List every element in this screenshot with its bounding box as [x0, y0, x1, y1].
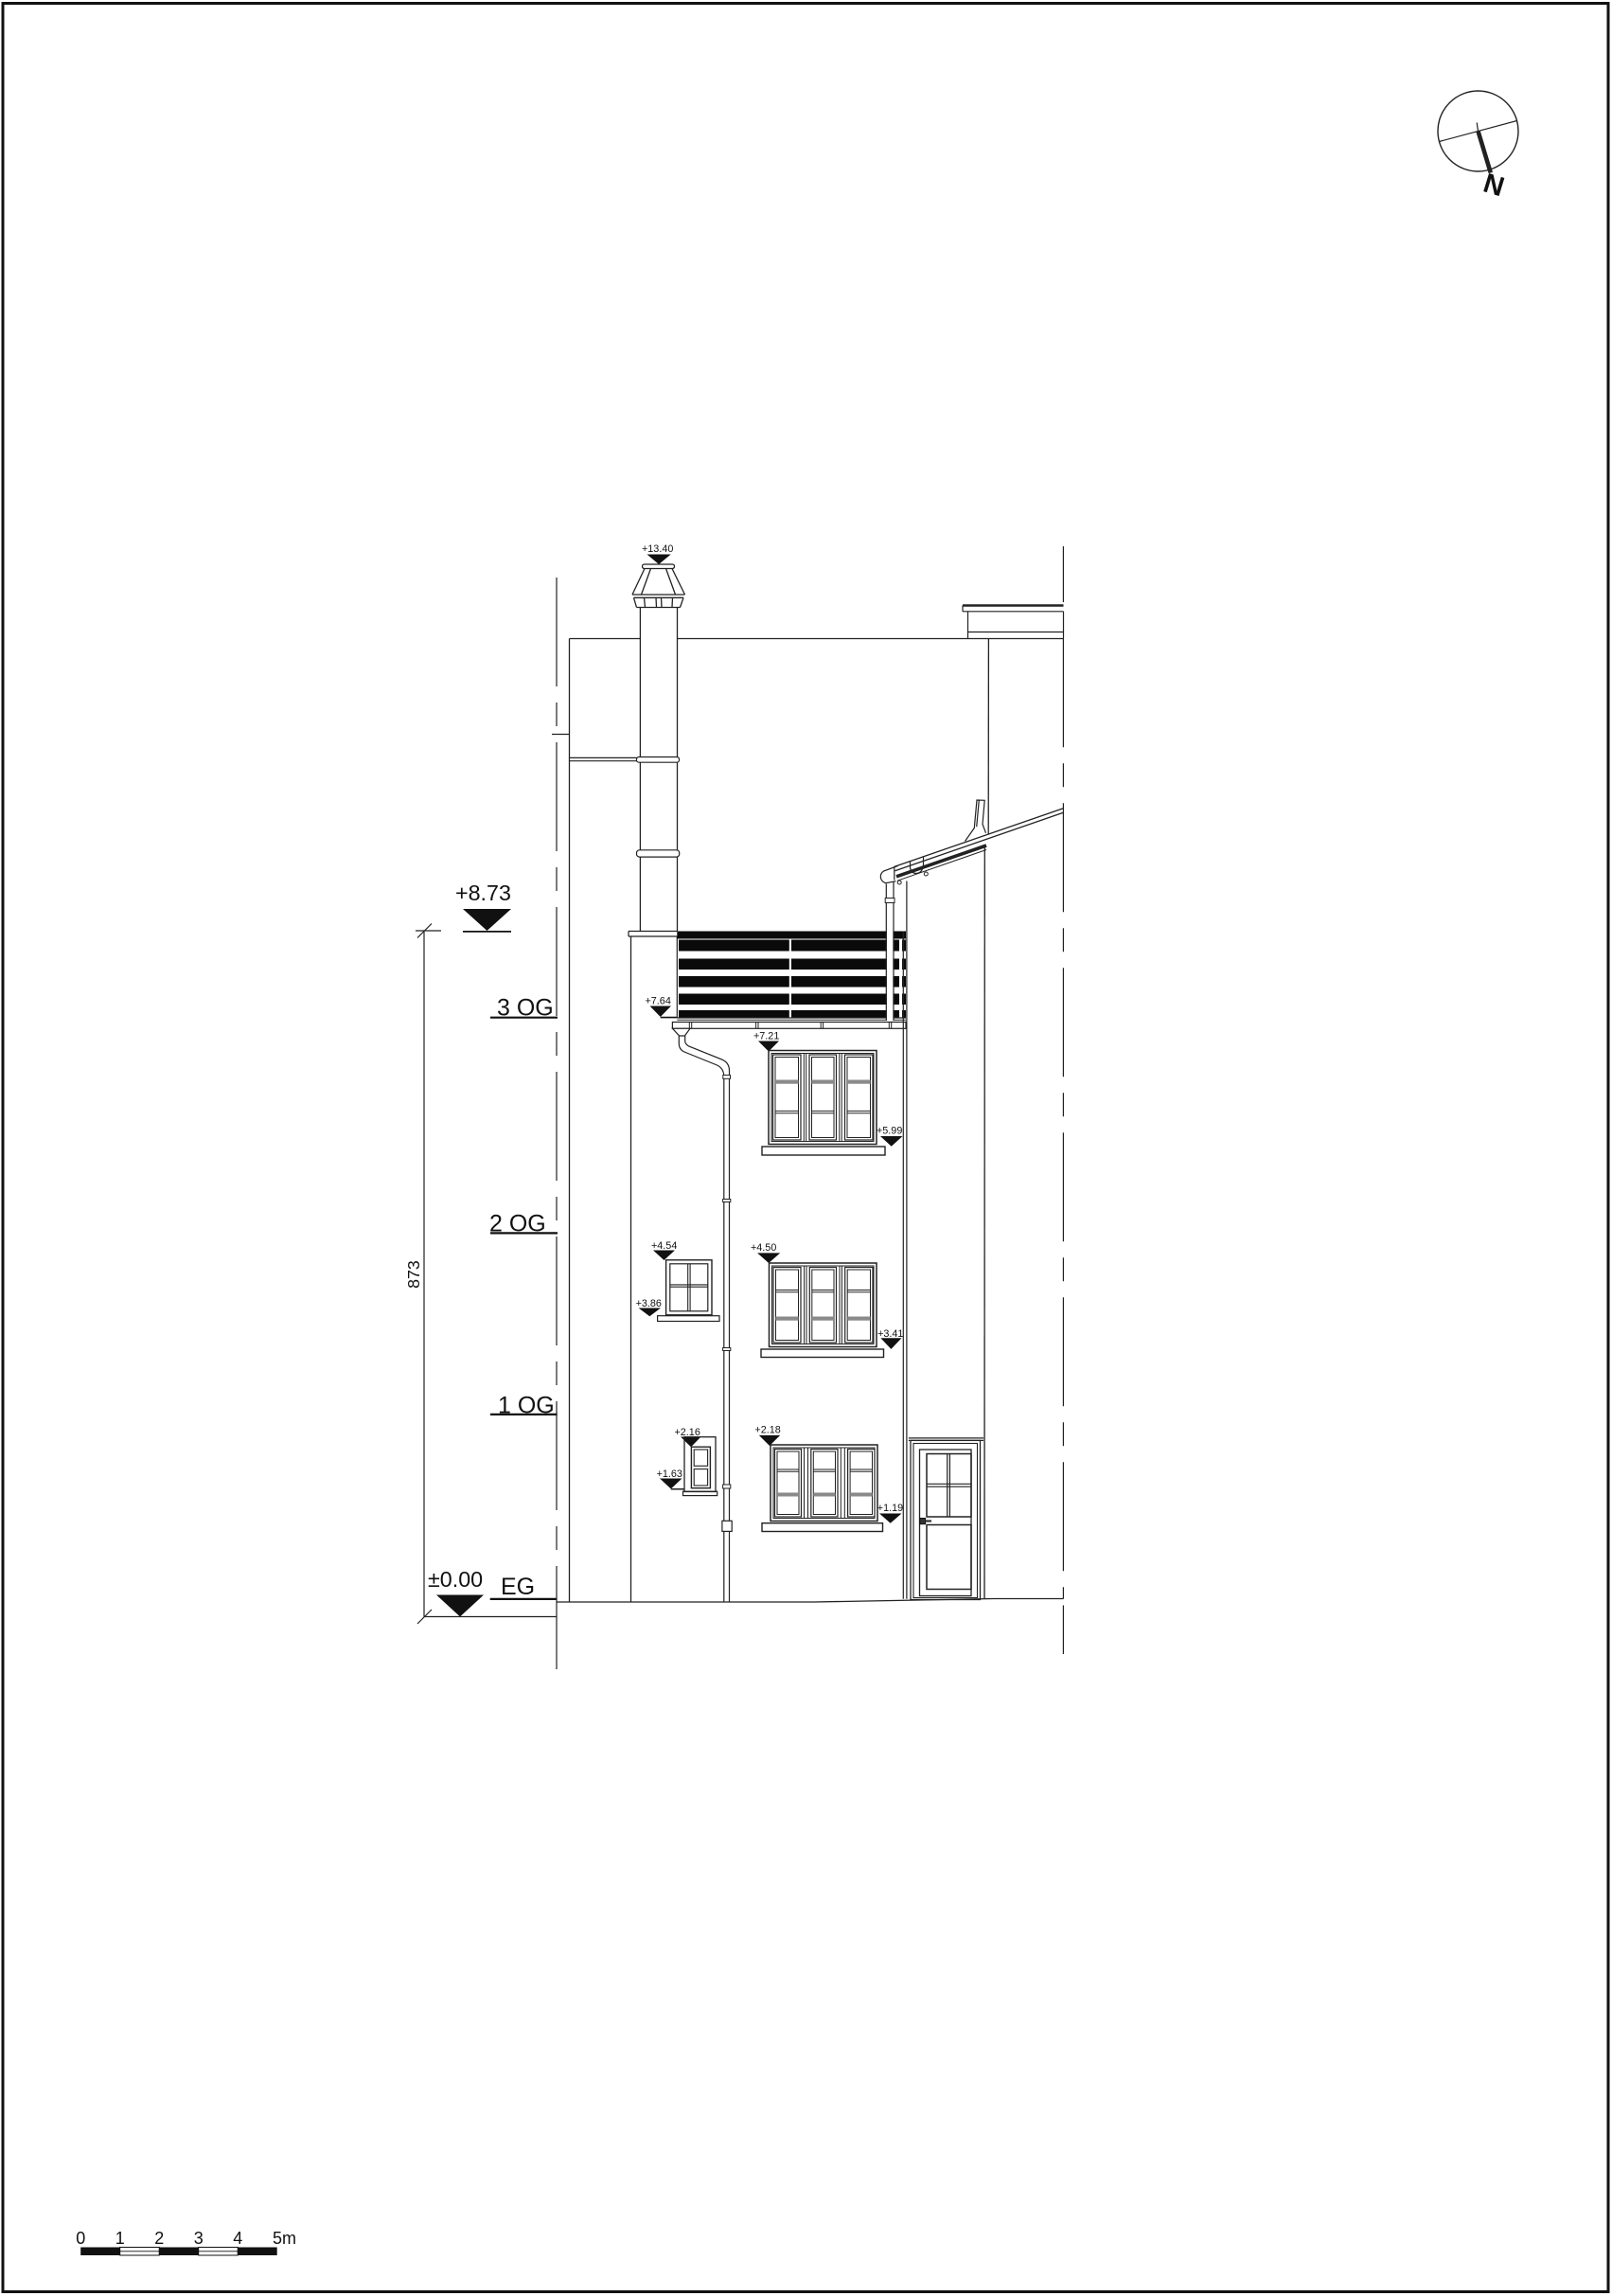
svg-text:0: 0: [76, 2229, 85, 2248]
svg-text:+3.86: +3.86: [636, 1298, 662, 1309]
svg-text:+13.40: +13.40: [642, 543, 673, 555]
svg-text:+4.54: +4.54: [651, 1240, 677, 1252]
svg-text:1: 1: [115, 2229, 125, 2248]
svg-text:+7.64: +7.64: [646, 996, 671, 1007]
svg-text:2: 2: [154, 2229, 164, 2248]
svg-text:+5.99: +5.99: [877, 1126, 902, 1137]
svg-text:+1.19: +1.19: [877, 1503, 903, 1514]
svg-text:+3.41: +3.41: [877, 1328, 903, 1340]
svg-text:+7.21: +7.21: [753, 1031, 779, 1042]
svg-text:3: 3: [194, 2229, 204, 2248]
svg-text:5m: 5m: [273, 2229, 296, 2248]
svg-text:+4.50: +4.50: [751, 1242, 776, 1254]
svg-text:+1.63: +1.63: [657, 1468, 682, 1480]
svg-text:+2.18: +2.18: [754, 1425, 780, 1436]
svg-text:±0.00: ±0.00: [428, 1567, 483, 1592]
svg-text:+8.73: +8.73: [455, 881, 511, 905]
svg-text:873: 873: [404, 1260, 423, 1289]
svg-text:4: 4: [233, 2229, 242, 2248]
svg-text:EG: EG: [501, 1574, 535, 1600]
